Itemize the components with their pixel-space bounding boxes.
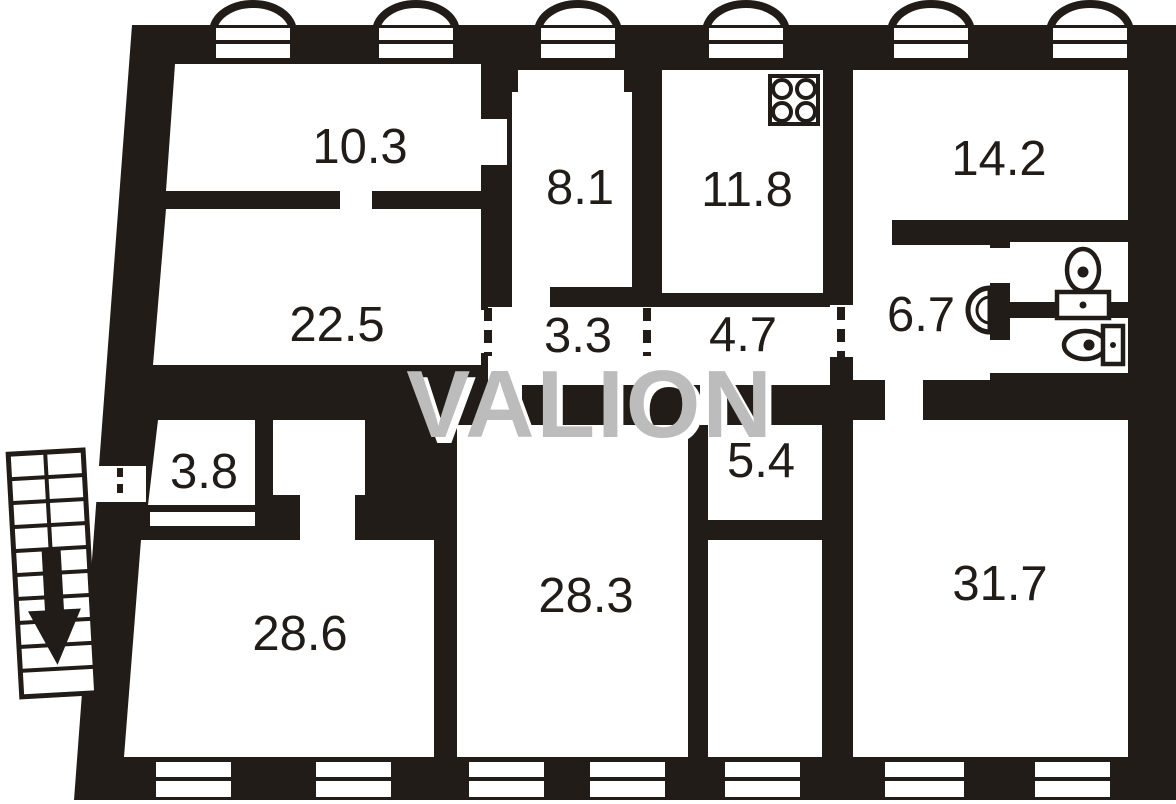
room-area-label-4-7: 4.7 <box>709 308 777 362</box>
window-icon <box>885 762 964 797</box>
door-opening <box>340 191 372 209</box>
room-area-label-11-8: 11.8 <box>701 163 793 217</box>
watermark-text: VALION <box>406 351 774 458</box>
stairs-icon <box>8 450 96 697</box>
window-icon <box>156 762 231 797</box>
vestibule-floor <box>273 420 365 495</box>
room-area-label-3-3: 3.3 <box>544 309 612 363</box>
door-opening <box>885 373 923 420</box>
door-opening <box>990 340 1010 373</box>
window-icon <box>541 28 615 58</box>
room-area-label-8-1: 8.1 <box>546 161 614 215</box>
room-area-label-31-7: 31.7 <box>952 557 1047 611</box>
sink-icon <box>968 288 990 332</box>
door-opening <box>853 220 892 245</box>
watermark: VALION VALION <box>406 351 780 464</box>
room-area-label-14-2: 14.2 <box>951 132 1046 186</box>
room-area-label-5-4: 5.4 <box>727 434 795 488</box>
window-icon <box>894 28 968 58</box>
room-area-label-3-8: 3.8 <box>170 445 238 499</box>
door-opening <box>300 495 355 540</box>
floor-plan: VALION VALION 10.3 22.5 8.1 11.8 14.2 6.… <box>0 0 1176 804</box>
window-icon <box>709 28 783 58</box>
room-area-label-10-3: 10.3 <box>312 120 407 174</box>
window-icon <box>1035 762 1110 797</box>
door-opening <box>990 248 1010 283</box>
window-icon <box>316 762 391 797</box>
room-area-label-22-5: 22.5 <box>289 298 384 352</box>
window-icon <box>1053 28 1127 58</box>
room-area-label-28-6: 28.6 <box>252 607 347 661</box>
window-icon <box>379 28 453 58</box>
door-opening <box>512 287 550 307</box>
floor-plan-page: VALION VALION 10.3 22.5 8.1 11.8 14.2 6.… <box>0 0 1176 804</box>
toilet-icon <box>1064 326 1123 364</box>
wall-niche <box>150 512 255 526</box>
wall-niche <box>481 119 507 165</box>
window-icon <box>216 28 290 58</box>
room-area-label-6-7: 6.7 <box>887 288 955 342</box>
room-area-label-28-3: 28.3 <box>538 569 633 623</box>
window-icon <box>725 762 800 797</box>
window-icon <box>469 762 544 797</box>
storage-room-floor <box>708 540 822 757</box>
window-recess <box>518 70 624 92</box>
window-icon <box>590 762 665 797</box>
stove-icon <box>770 76 818 124</box>
